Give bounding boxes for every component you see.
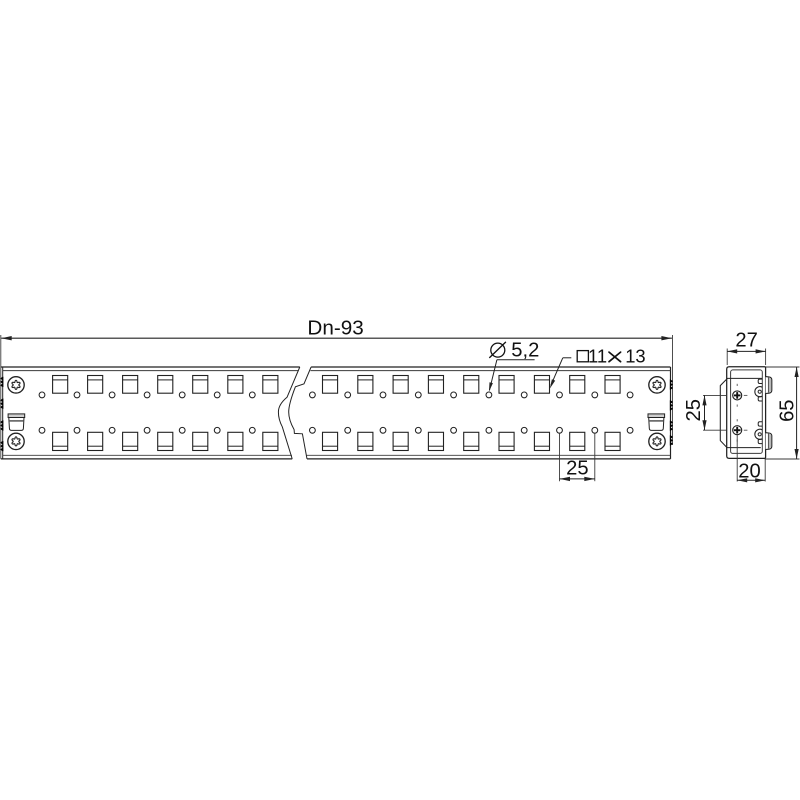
svg-text:65: 65 [776, 399, 798, 421]
svg-text:5,2: 5,2 [511, 340, 539, 362]
svg-text:25: 25 [566, 458, 588, 480]
svg-text:27: 27 [735, 329, 757, 351]
svg-text:20: 20 [738, 461, 760, 483]
svg-text:25: 25 [683, 399, 705, 421]
svg-text:Dn-93: Dn-93 [307, 317, 363, 340]
